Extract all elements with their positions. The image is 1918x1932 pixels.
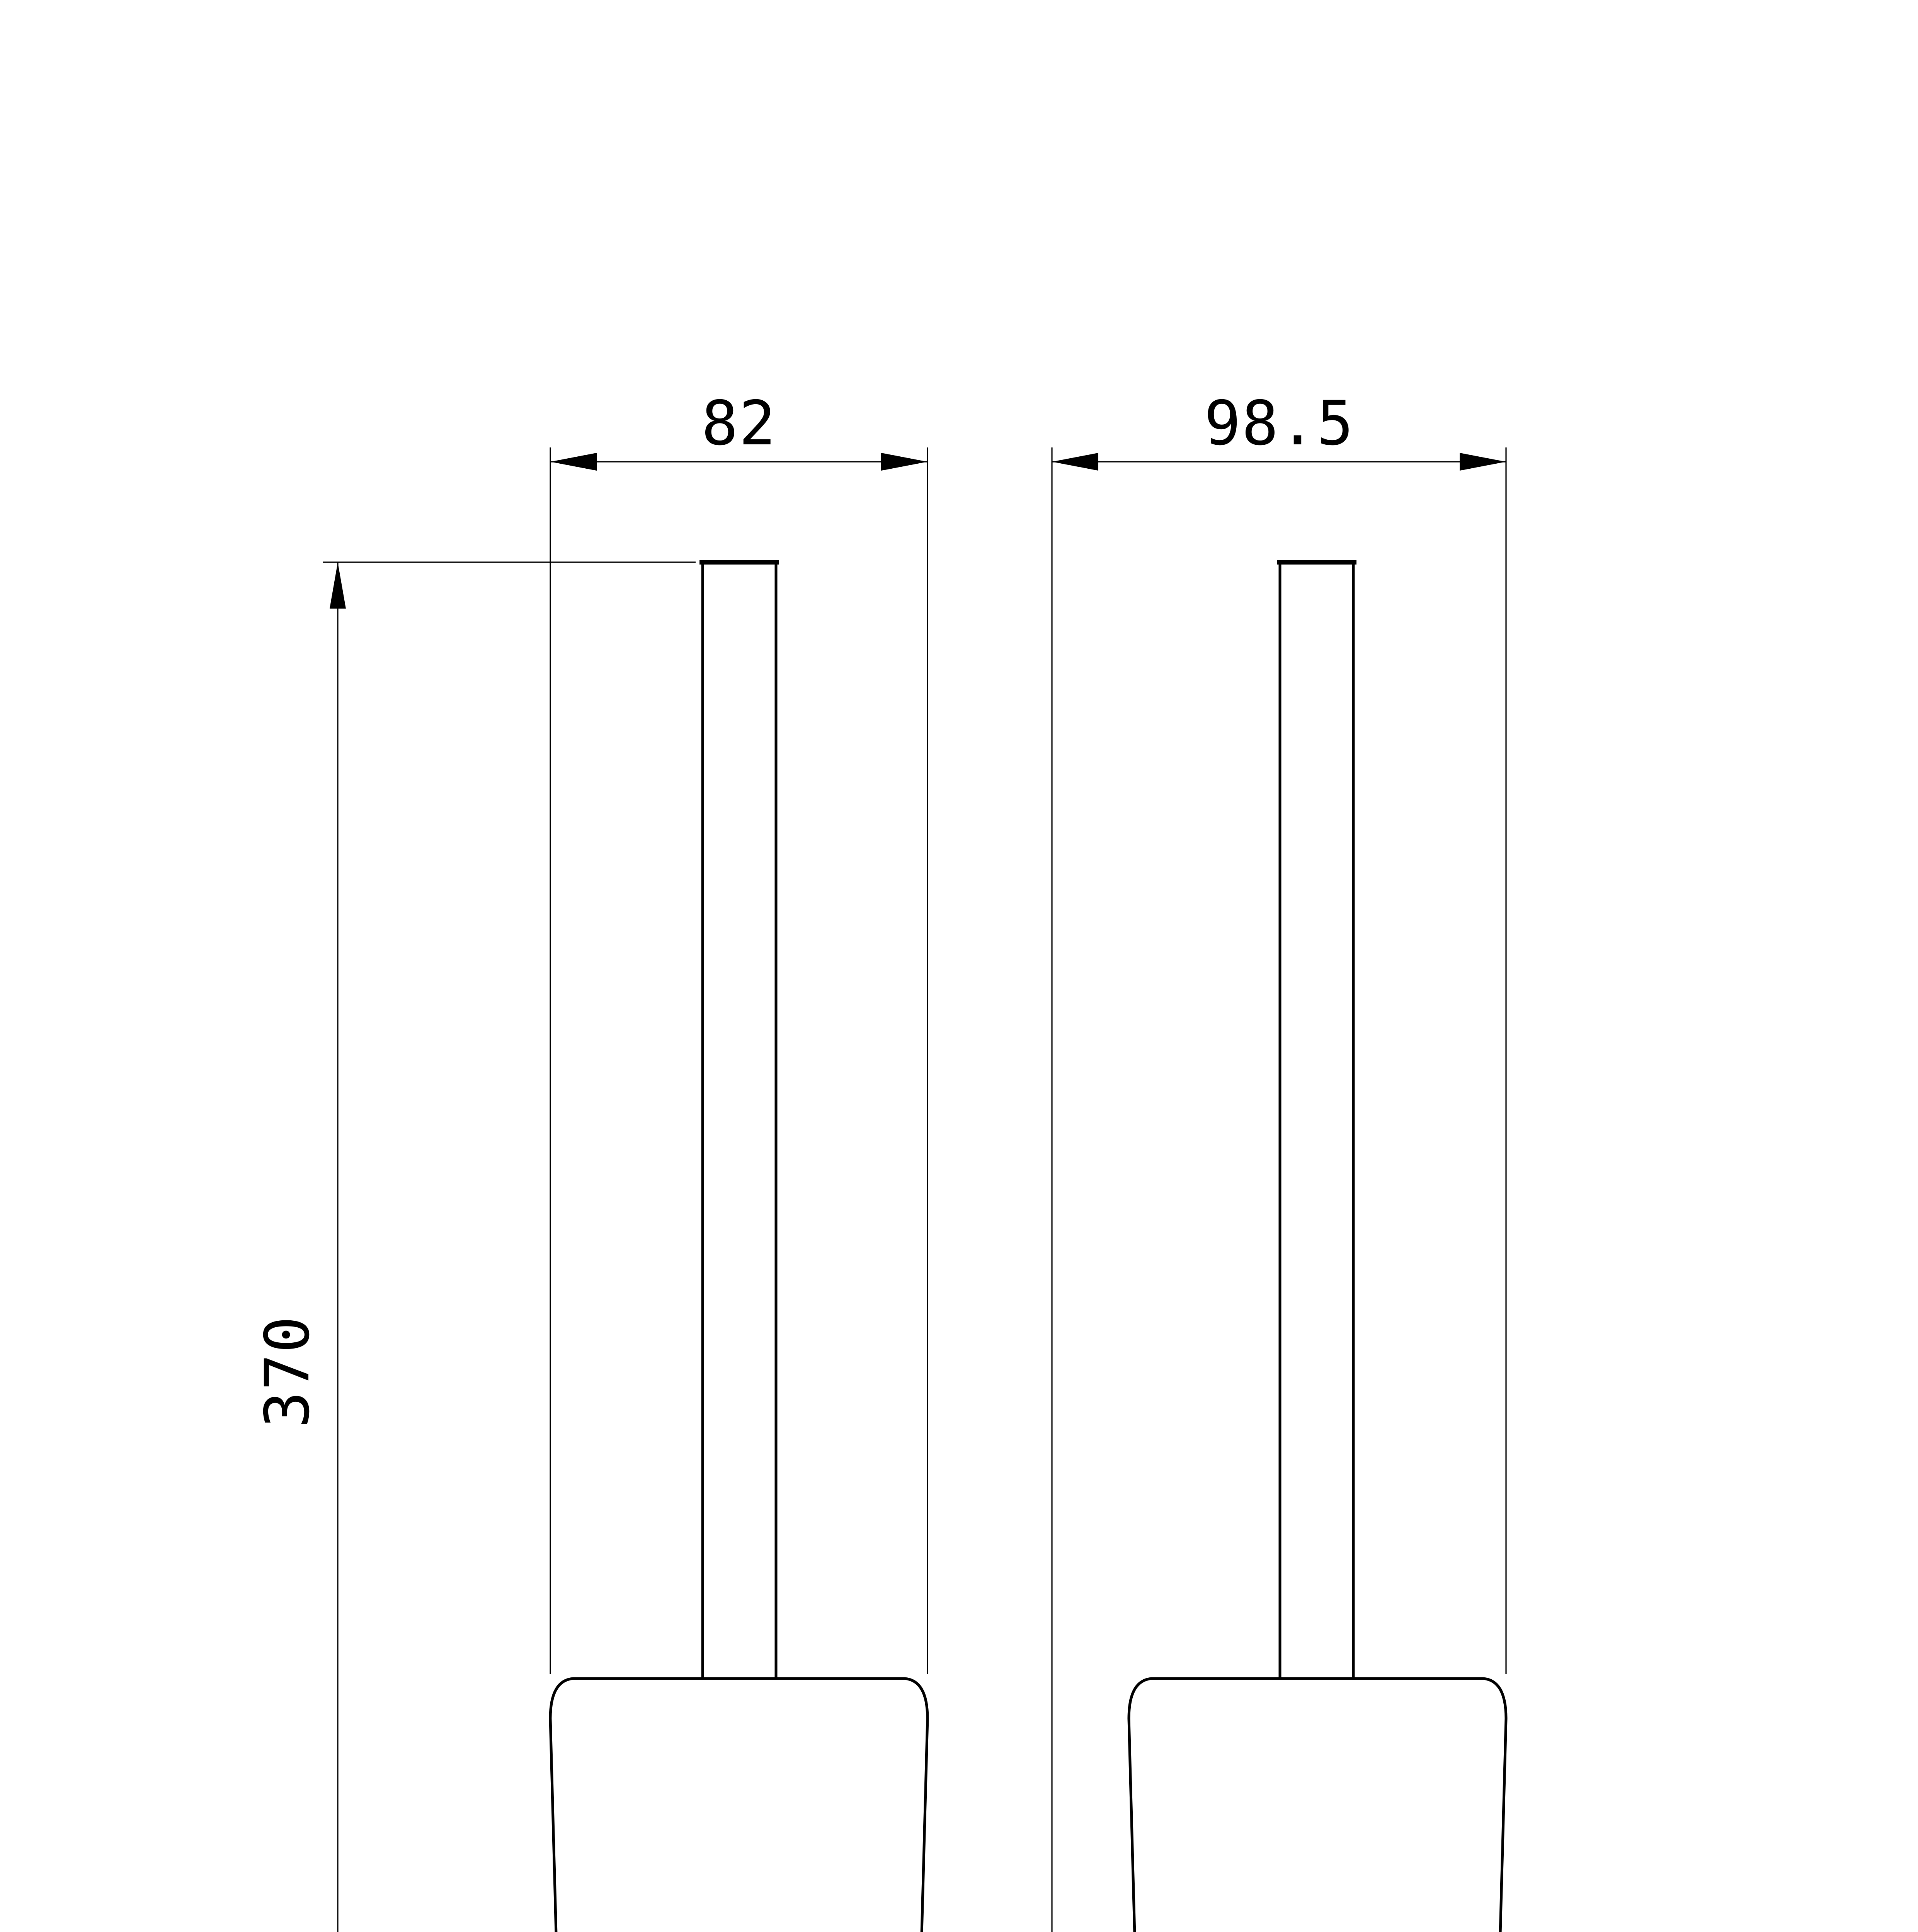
dim-98-5-arrowhead-right (1460, 453, 1506, 471)
dim-370-arrowhead-top (330, 562, 346, 609)
front-view-cup-outline (550, 1679, 928, 1932)
dim-82-value: 82 (701, 388, 776, 459)
front-view (550, 562, 928, 1932)
dim-98-5-value: 98.5 (1204, 388, 1355, 459)
side-view-cup-outline (1129, 1679, 1506, 1932)
side-view (1052, 562, 1506, 1932)
dim-98-5-arrowhead-left (1052, 453, 1098, 471)
dim-82-arrowhead-right (881, 453, 928, 471)
dim-82-arrowhead-left (550, 453, 597, 471)
dimension-front-width: 82 (550, 388, 928, 1674)
technical-drawing-canvas: 82 98.5 370 (0, 0, 1918, 1932)
dim-370-value: 370 (252, 1315, 323, 1428)
drawing-sheet: 82 98.5 370 (0, 0, 1918, 1932)
side-view-handle-outline (1280, 562, 1353, 1679)
front-view-handle-outline (703, 562, 776, 1679)
dimension-overall-height: 370 (252, 562, 696, 1932)
